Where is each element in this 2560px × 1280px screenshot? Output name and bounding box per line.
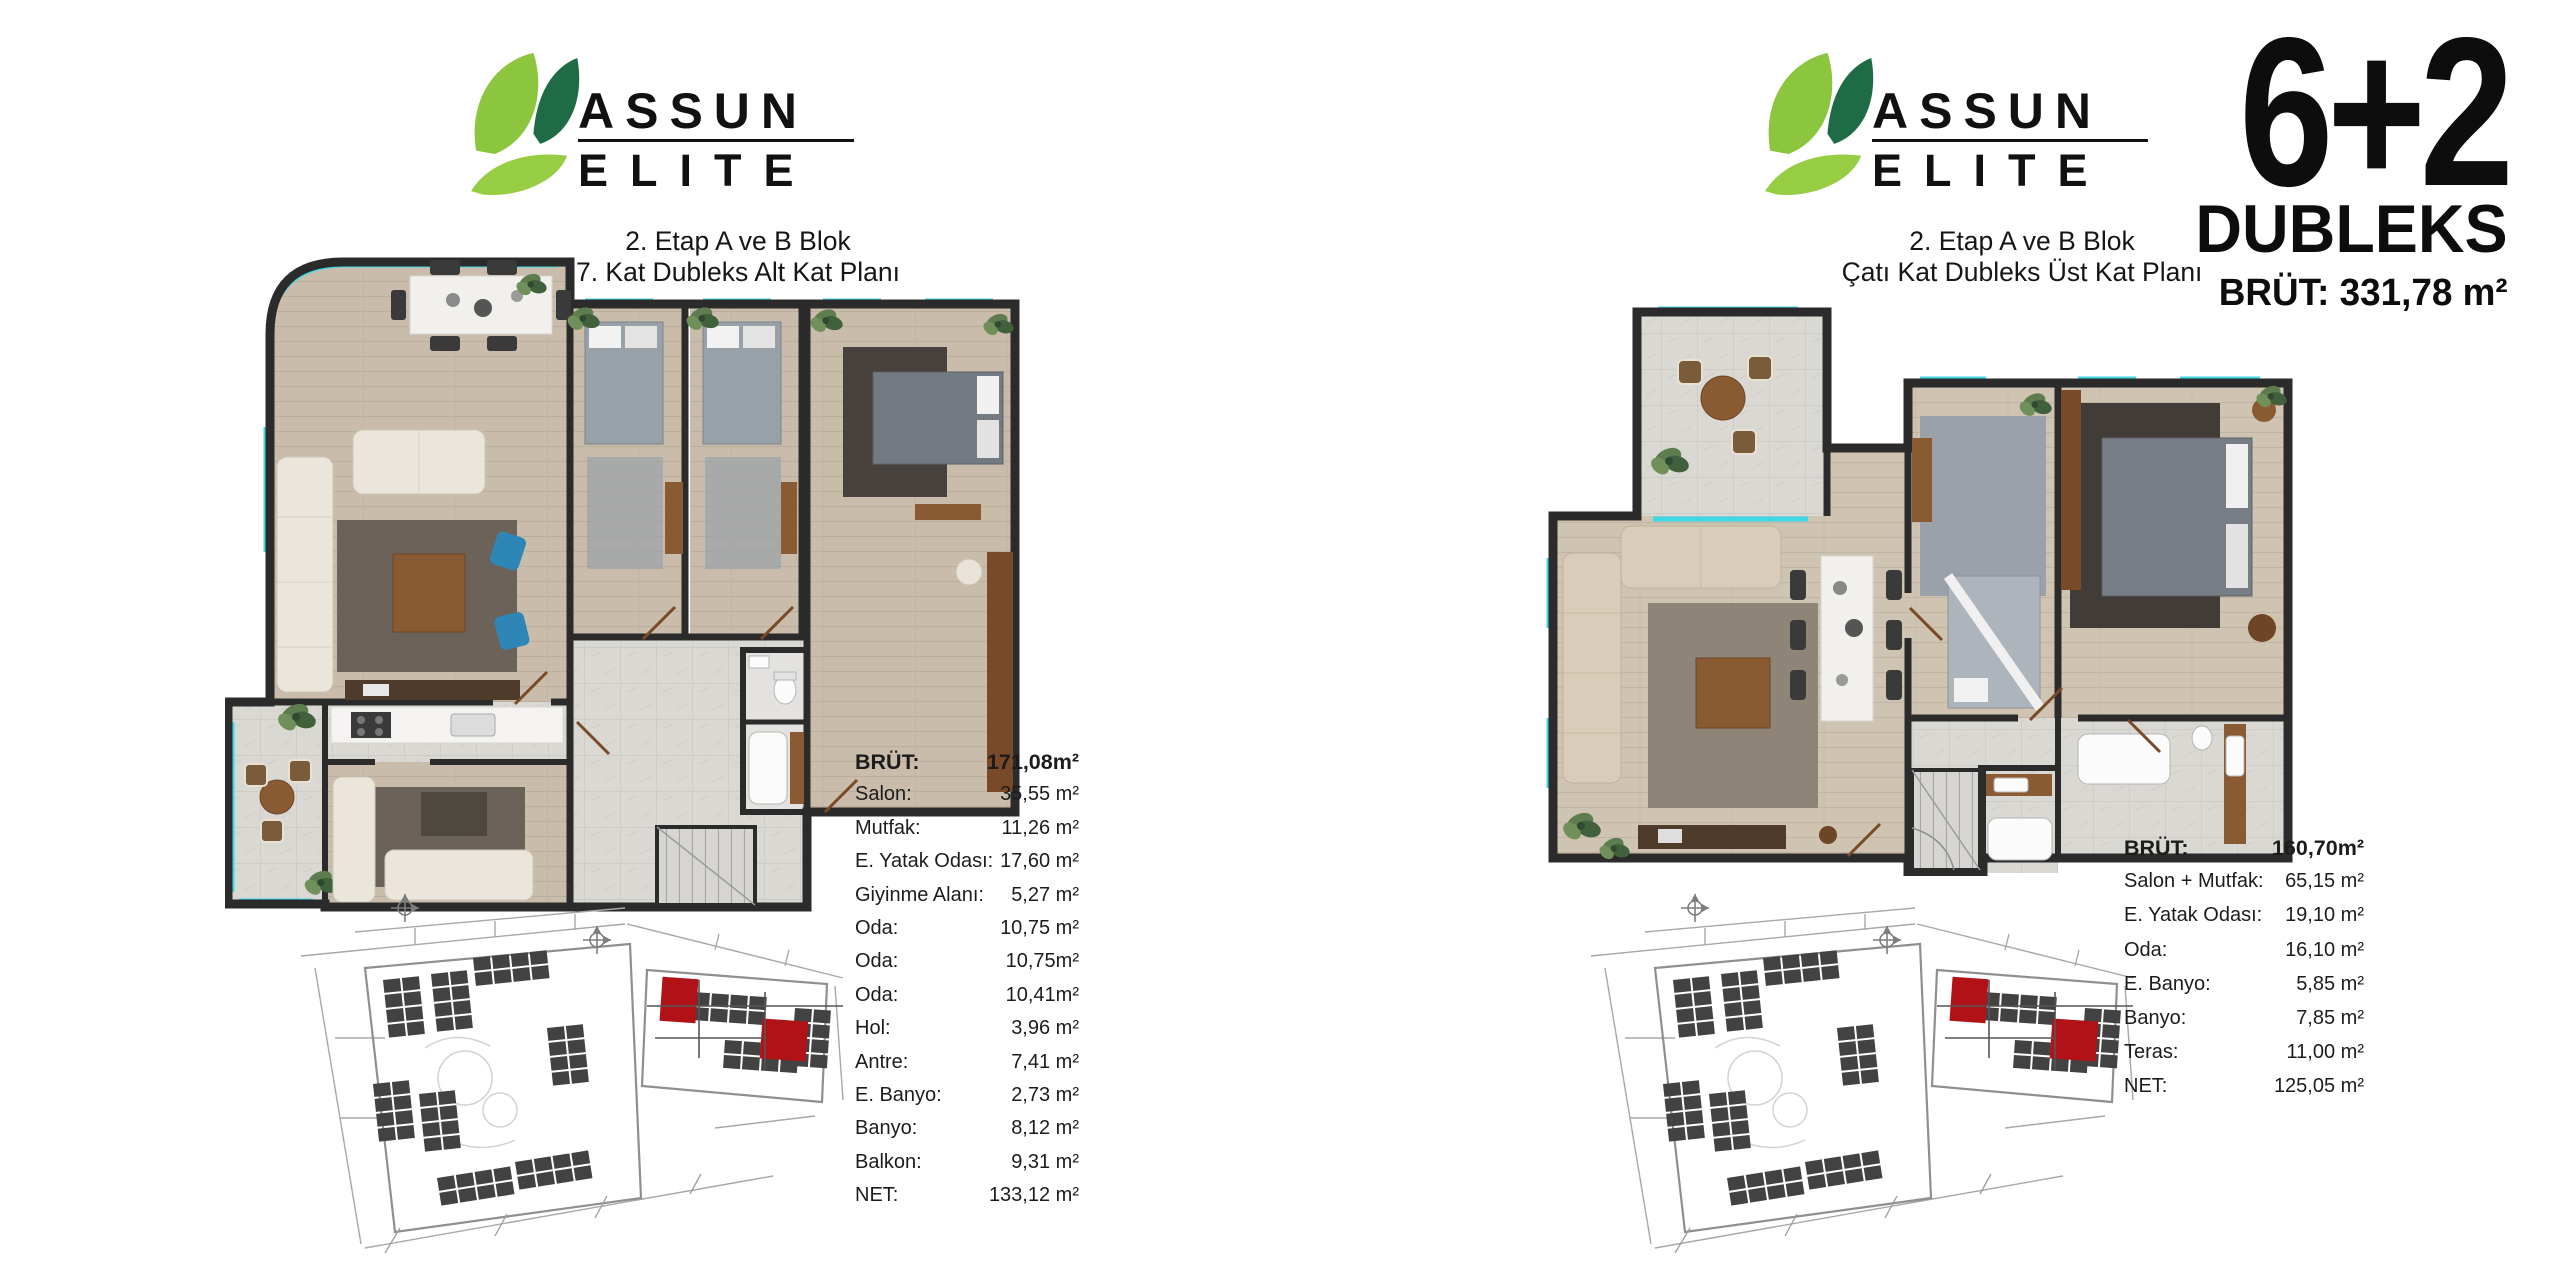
area-label: NET: — [2124, 1075, 2167, 1098]
brand-line2: ELITE — [1872, 149, 2156, 193]
area-table-upper: BRÜT: 160,70m² Salon + Mutfak: 65,15 m² … — [2124, 836, 2364, 1110]
area-label: Mutfak: — [855, 817, 921, 840]
area-label: Salon: — [855, 783, 912, 806]
site-plan-left — [295, 888, 847, 1270]
brand-rule — [1872, 139, 2148, 142]
area-row: Oda: 10,75 m² — [855, 917, 1079, 950]
area-value: 16,10 m² — [2285, 939, 2364, 962]
area-label: Balkon: — [855, 1151, 922, 1174]
area-value: 19,10 m² — [2285, 904, 2364, 927]
area-value: 10,41m² — [1006, 984, 1079, 1007]
area-label: E. Yatak Odası: — [2124, 904, 2262, 927]
leaf-logo-icon — [1760, 38, 1878, 206]
area-row: E. Yatak Odası: 19,10 m² — [2124, 904, 2364, 938]
area-label: Teras: — [2124, 1041, 2178, 1064]
area-row: Banyo: 7,85 m² — [2124, 1007, 2364, 1041]
area-label: Oda: — [855, 950, 898, 973]
brand-line1: ASSUN — [578, 88, 862, 134]
area-row: E. Banyo: 5,85 m² — [2124, 973, 2364, 1007]
area-value: 133,12 m² — [989, 1184, 1079, 1207]
area-label: Banyo: — [855, 1117, 917, 1140]
area-label: E. Banyo: — [855, 1084, 942, 1107]
kitchen — [331, 707, 563, 743]
area-row: Mutfak: 11,26 m² — [855, 817, 1079, 850]
area-value: 7,41 m² — [1011, 1051, 1079, 1074]
area-value: 7,85 m² — [2296, 1007, 2364, 1030]
area-value: 65,15 m² — [2285, 870, 2364, 893]
area-label: Oda: — [2124, 939, 2167, 962]
brand-rule — [578, 139, 854, 142]
lower-bedroom — [333, 777, 533, 902]
area-row: BRÜT: 171,08m² — [855, 750, 1079, 783]
area-value: 9,31 m² — [1011, 1151, 1079, 1174]
area-value: 10,75m² — [1006, 950, 1079, 973]
area-label: Banyo: — [2124, 1007, 2186, 1030]
area-value: 11,00 m² — [2287, 1041, 2364, 1064]
brand-logo-right: ASSUN ELITE — [1760, 36, 2156, 206]
brand-line2: ELITE — [578, 149, 862, 193]
leaf-logo-icon — [466, 38, 584, 206]
area-value: 3,96 m² — [1011, 1017, 1079, 1040]
area-label: E. Yatak Odası: — [855, 850, 993, 873]
area-value: 160,70m² — [2272, 836, 2364, 861]
stairs — [1912, 770, 1980, 870]
area-row: NET: 133,12 m² — [855, 1184, 1079, 1217]
area-row: Salon: 35,55 m² — [855, 783, 1079, 816]
area-label: Giyinme Alanı: — [855, 884, 984, 907]
area-row: Teras: 11,00 m² — [2124, 1041, 2364, 1075]
area-value: 10,75 m² — [1000, 917, 1079, 940]
brand-wordmark: ASSUN ELITE — [1872, 36, 2156, 193]
brand-line1: ASSUN — [1872, 88, 2156, 134]
area-row: Oda: 10,75m² — [855, 950, 1079, 983]
unit-header: 6+2 DUBLEKS BRÜT: 331,78 m² — [2172, 26, 2508, 315]
area-row: E. Banyo: 2,73 m² — [855, 1084, 1079, 1117]
area-value: 17,60 m² — [1000, 850, 1079, 873]
area-row: Oda: 10,41m² — [855, 984, 1079, 1017]
area-value: 8,12 m² — [1011, 1117, 1079, 1140]
area-label: E. Banyo: — [2124, 973, 2211, 996]
floor-plan-upper-level — [1518, 298, 2318, 876]
area-label: Salon + Mutfak: — [2124, 870, 2264, 893]
area-value: 5,85 m² — [2296, 973, 2364, 996]
area-label: Oda: — [855, 984, 898, 1007]
area-label: BRÜT: — [2124, 836, 2189, 861]
area-row: Balkon: 9,31 m² — [855, 1151, 1079, 1184]
area-label: BRÜT: — [855, 750, 920, 775]
unit-type: 6+2 — [2240, 26, 2509, 198]
area-row: Salon + Mutfak: 65,15 m² — [2124, 870, 2364, 904]
area-row: Hol: 3,96 m² — [855, 1017, 1079, 1050]
area-value: 5,27 m² — [1011, 884, 1079, 907]
area-value: 2,73 m² — [1011, 1084, 1079, 1107]
area-row: Banyo: 8,12 m² — [855, 1117, 1079, 1150]
area-row: BRÜT: 160,70m² — [2124, 836, 2364, 870]
area-value: 125,05 m² — [2274, 1075, 2364, 1098]
area-value: 171,08m² — [987, 750, 1079, 775]
area-label: Oda: — [855, 917, 898, 940]
area-table-lower: BRÜT: 171,08m² Salon: 35,55 m² Mutfak: 1… — [855, 750, 1079, 1217]
area-label: NET: — [855, 1184, 898, 1207]
area-row: Antre: 7,41 m² — [855, 1051, 1079, 1084]
brand-logo-left: ASSUN ELITE — [466, 36, 862, 206]
area-row: Oda: 16,10 m² — [2124, 939, 2364, 973]
area-row: NET: 125,05 m² — [2124, 1075, 2364, 1109]
unit-name: DUBLEKS — [2189, 198, 2508, 260]
area-value: 35,55 m² — [1000, 783, 1079, 806]
brochure-page: ASSUN ELITE 2. Etap A ve B Blok 7. Kat D… — [0, 0, 2560, 1280]
area-label: Hol: — [855, 1017, 891, 1040]
area-row: E. Yatak Odası: 17,60 m² — [855, 850, 1079, 883]
brand-wordmark: ASSUN ELITE — [578, 36, 862, 193]
area-label: Antre: — [855, 1051, 908, 1074]
site-plan-right — [1585, 888, 2137, 1270]
area-value: 11,26 m² — [1002, 817, 1079, 840]
area-row: Giyinme Alanı: 5,27 m² — [855, 884, 1079, 917]
